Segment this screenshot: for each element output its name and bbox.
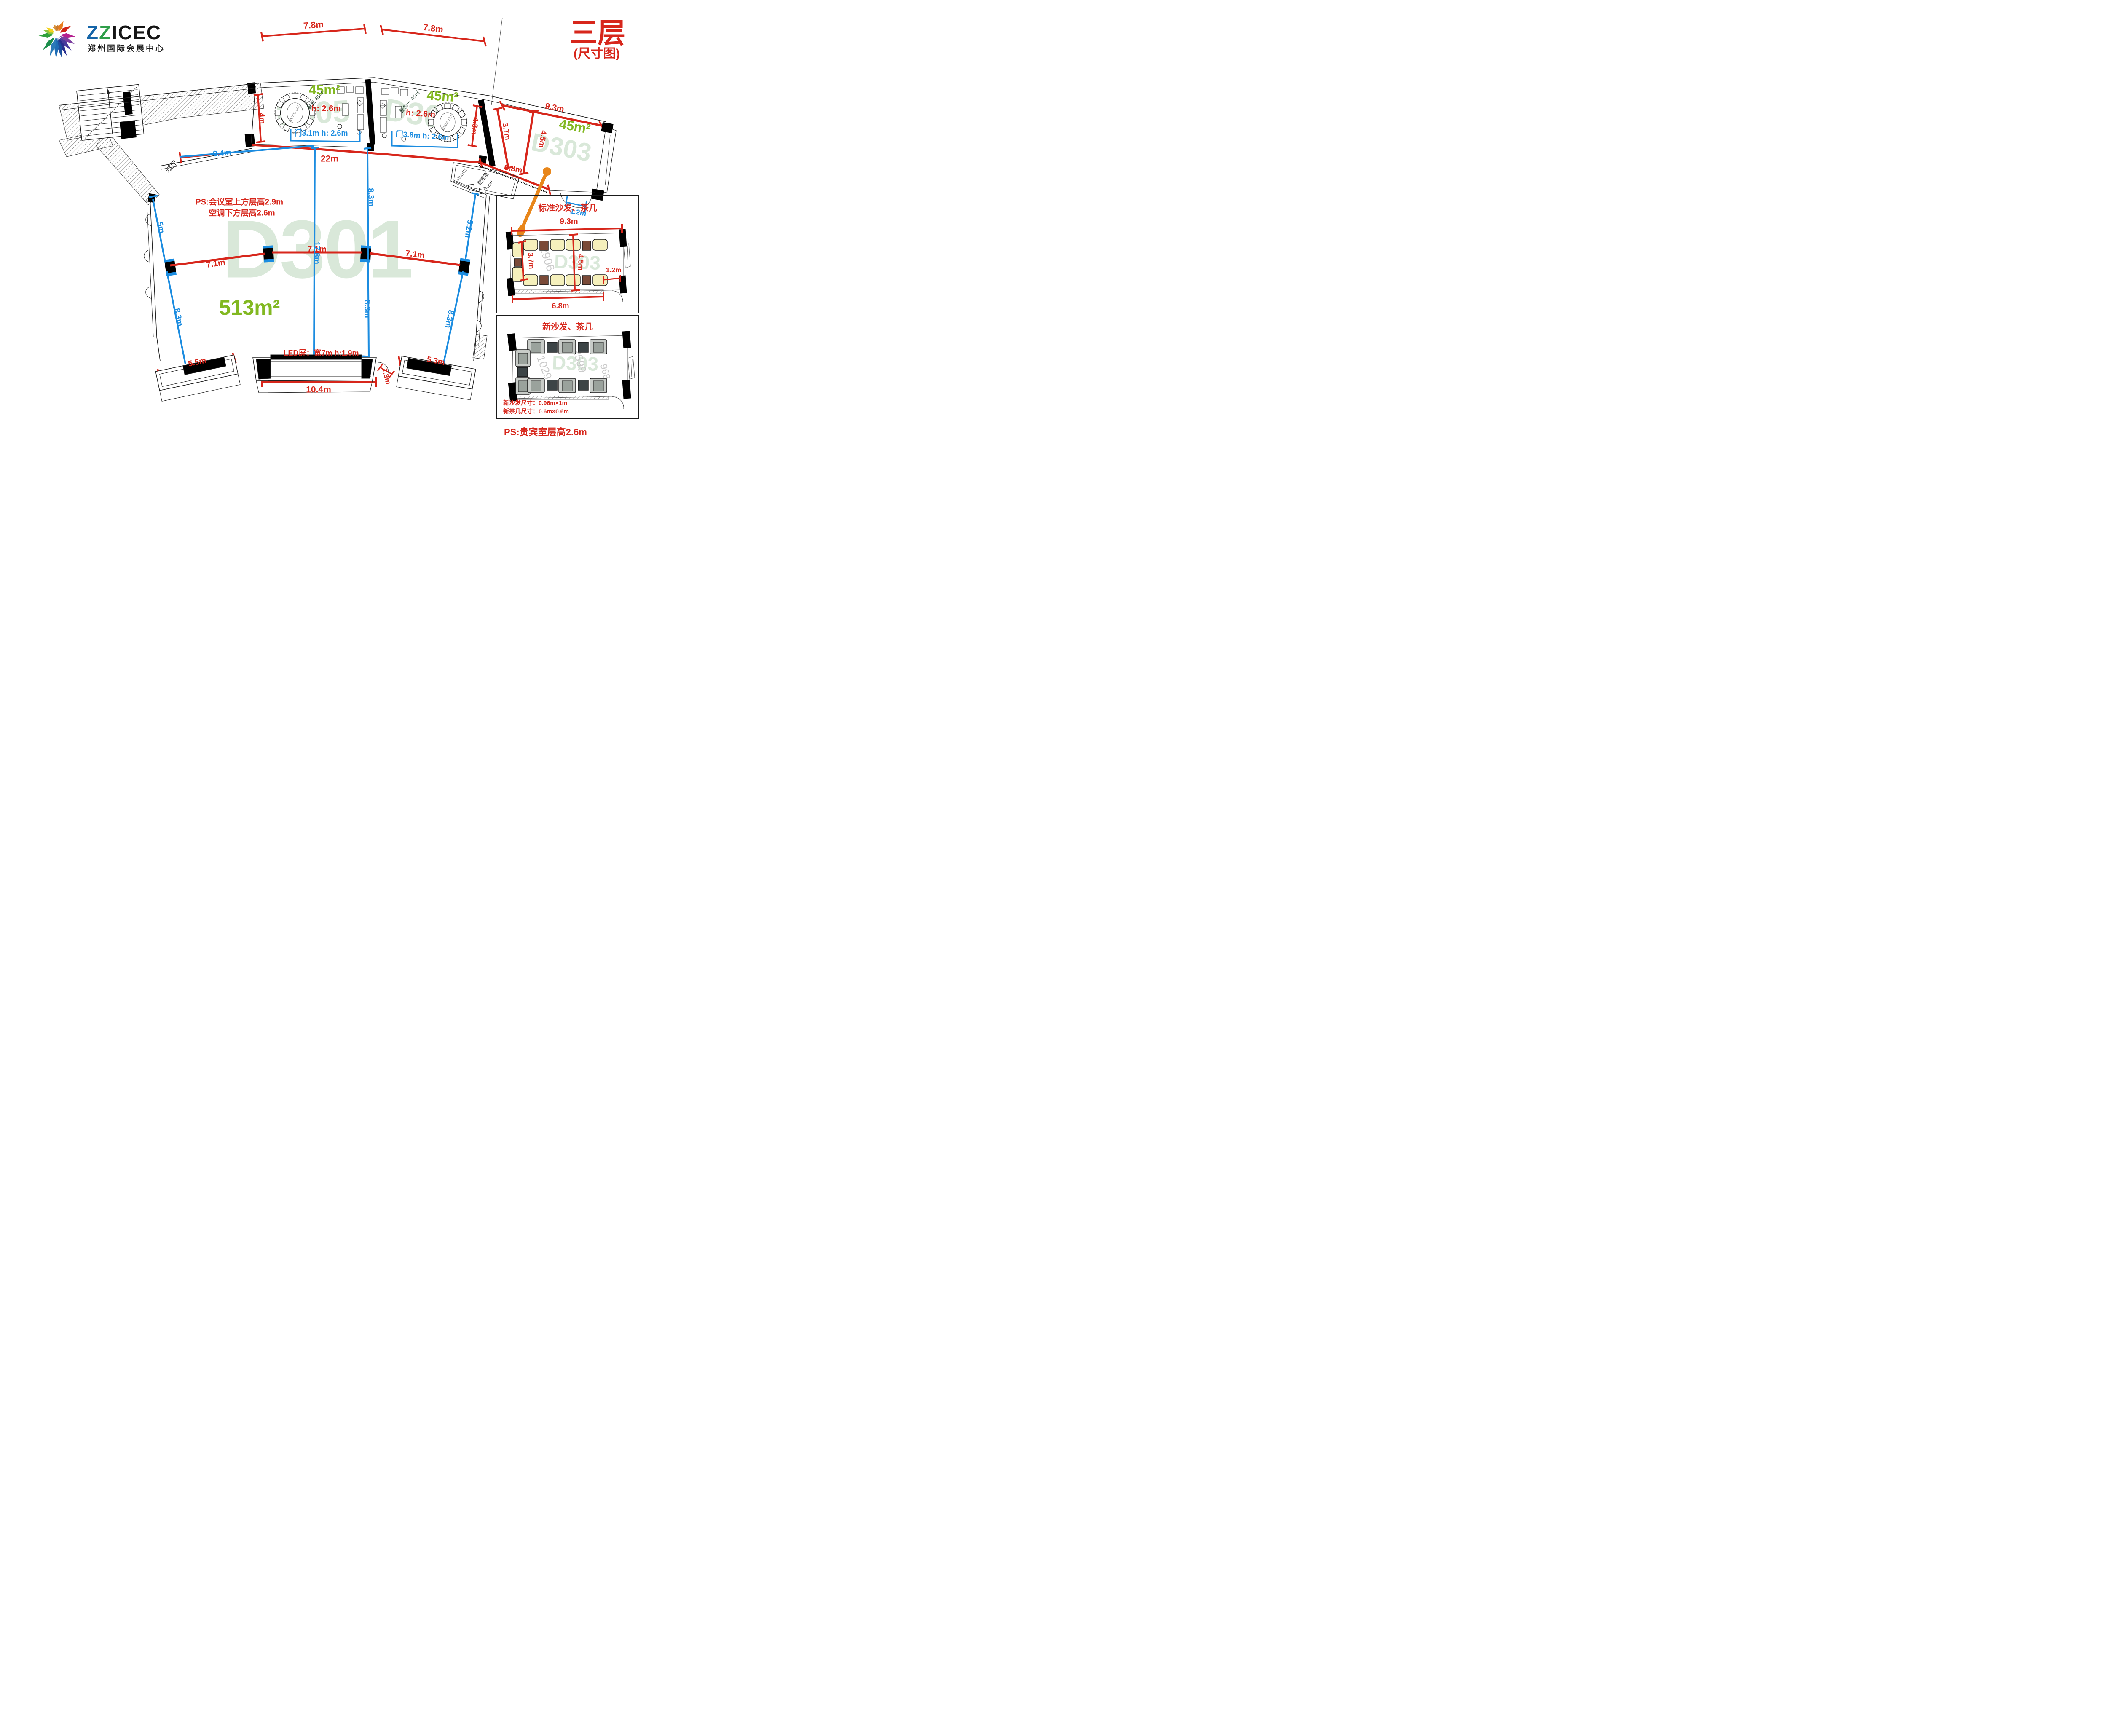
panel2-bg-code-3: 968 bbox=[599, 363, 612, 380]
dim-mid-lower: 8.3m bbox=[363, 300, 371, 318]
dim-dining-right-width: 7.8m bbox=[423, 23, 444, 35]
hall-ps-line1: PS:会议室上方层高2.9m bbox=[196, 198, 283, 206]
panel2-table-note: 新茶几尺寸：0.6m×0.6m bbox=[503, 408, 569, 414]
dim-d303-wall-depth: 3.7m bbox=[501, 122, 512, 141]
dim-mid-upper: 8.3m bbox=[366, 188, 375, 206]
dim-right-upper: 5.2m bbox=[463, 219, 474, 238]
dim-stage-door-width: 1.3m bbox=[381, 367, 392, 385]
panel2-sofa-note: 新沙发尺寸：0.96m×1m bbox=[503, 400, 567, 406]
panel2-title: 新沙发、茶几 bbox=[542, 323, 593, 331]
sound-room-code: 3ALDG1 bbox=[455, 168, 468, 183]
panel-new-sofa: D303 1029 2599 968 bbox=[496, 315, 639, 419]
door-label-dining-left: 门3.1m h: 2.6m bbox=[294, 129, 348, 137]
area-dining-right: 45m² bbox=[426, 88, 459, 104]
panel2-bg-code-1: 1029 bbox=[535, 354, 554, 380]
dim-stage-left-width: 5.5m bbox=[188, 356, 207, 368]
panel1-dim-bottom: 6.8m bbox=[552, 302, 569, 310]
panel1-dim-width: 9.3m bbox=[560, 218, 578, 226]
floor-plan-page: D305 D304 D303 D301 bbox=[0, 0, 651, 461]
brand-wordmark: ZZICEC bbox=[86, 21, 161, 44]
brand-subtitle: 郑州国际会展中心 bbox=[88, 42, 165, 54]
dim-stage-center-width: 10.4m bbox=[306, 386, 331, 394]
sound-room-area: 16.8㎡ bbox=[483, 180, 494, 192]
dim-left-upper: 5m bbox=[155, 221, 166, 234]
height-dining-right: h: 2.6m bbox=[405, 109, 435, 119]
panel-standard-sofa: D303 2906 bbox=[496, 195, 639, 313]
dim-d303-width: 9.3m bbox=[544, 102, 565, 114]
panel1-dim-right: 1.2m bbox=[606, 267, 621, 274]
corridor-label: 过厅 bbox=[165, 160, 179, 174]
footer-ps-note: PS:贵宾室层高2.6m bbox=[504, 428, 587, 437]
stairs bbox=[77, 84, 144, 140]
dim-right-lower: 8.3m bbox=[443, 309, 455, 329]
hatched-corridor bbox=[59, 83, 264, 205]
wall-piers bbox=[120, 82, 256, 203]
hall-top-wall-red bbox=[252, 145, 480, 163]
floor-title: 三层 bbox=[570, 19, 625, 47]
logo-starburst-icon bbox=[23, 8, 91, 67]
panel1-bg-code: 2906 bbox=[538, 245, 556, 272]
area-hall: 513m² bbox=[219, 297, 280, 318]
height-dining-left: h: 2.6m bbox=[311, 104, 341, 113]
area-dining-left: 45m² bbox=[309, 83, 340, 96]
led-screen-label: LED屏：宽7m h:1.9m bbox=[283, 349, 359, 357]
dim-d303-bottom-width: 6.8m bbox=[504, 163, 523, 174]
dim-stage-right-width: 5.3m bbox=[426, 356, 445, 367]
panel1-dim-left: 3.7m bbox=[527, 252, 535, 269]
panel1-dim-center: 4.5m bbox=[577, 254, 584, 270]
floor-subtitle: (尺寸图) bbox=[574, 48, 620, 60]
brand-z1: Z bbox=[86, 21, 99, 43]
panel1-title: 标准沙发、茶几 bbox=[538, 204, 597, 212]
dim-hall-top-width: 22m bbox=[321, 155, 338, 163]
brand-icec: ICEC bbox=[112, 21, 161, 43]
dim-dining-left-depth: 4m bbox=[258, 113, 266, 124]
dim-entry-arc-width: 9.4m bbox=[213, 149, 232, 158]
brand-z2: Z bbox=[99, 21, 112, 43]
dim-hall-depth: 17.8m bbox=[313, 241, 321, 264]
hall-ps-line2: 空调下方层高2.6m bbox=[209, 209, 275, 217]
dim-dining-right-depth: 4.3m bbox=[470, 117, 480, 135]
dim-left-lower: 8.3m bbox=[172, 308, 184, 327]
dim-pillar-span-3: 7.1m bbox=[405, 249, 425, 260]
dim-dining-left-width: 7.8m bbox=[303, 20, 324, 30]
